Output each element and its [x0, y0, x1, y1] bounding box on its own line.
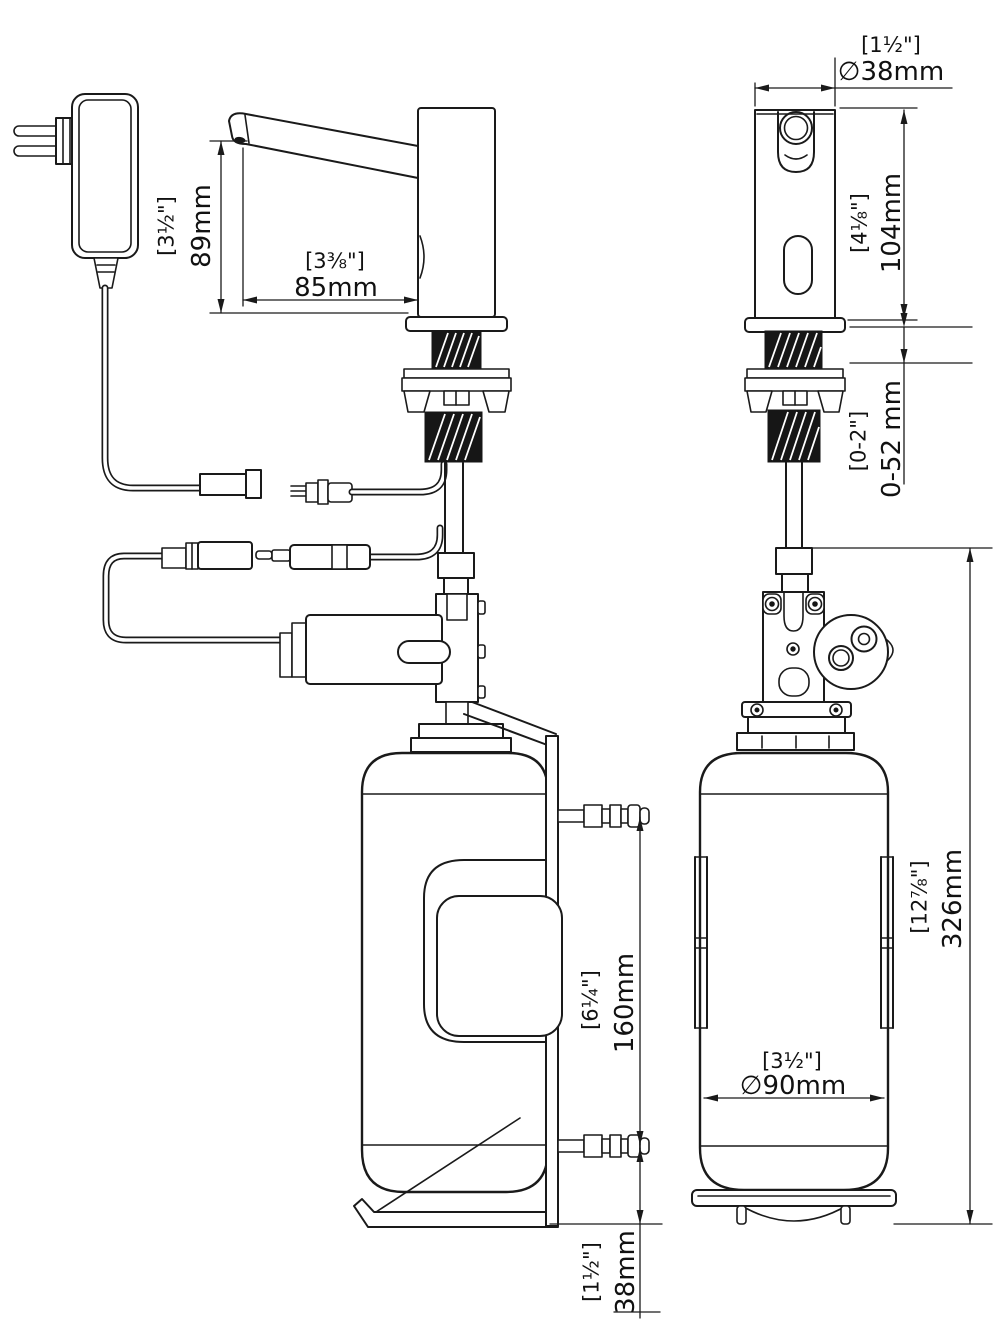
technical-drawing: [3½"] 89mm [3⅜"] 85mm [1½"] ∅38mm [4⅛"] …	[0, 0, 1000, 1337]
plug-rib	[318, 480, 328, 504]
spout-arm	[229, 113, 418, 178]
base-pin	[737, 1206, 746, 1224]
spout-side-view	[229, 108, 511, 752]
pump-end-cap	[292, 623, 306, 677]
plug-tip	[306, 483, 318, 502]
bracket-window	[437, 896, 562, 1036]
bottle-front-view	[692, 753, 896, 1224]
dim-bottle-diameter-inch: [3½"]	[762, 1049, 822, 1073]
pump-notch	[398, 641, 450, 663]
dim-deck-thickness-mm: 0-52 mm	[877, 380, 907, 498]
dimension-spout-body-height: [4⅛"] 104mm	[840, 108, 917, 320]
jack-male	[256, 545, 370, 569]
pump-end-cap	[280, 633, 292, 677]
drawing-sheet: [3½"] 89mm [3⅜"] 85mm [1½"] ∅38mm [4⅛"] …	[0, 0, 1000, 1337]
fitting-neck	[444, 578, 468, 594]
pump-motor	[280, 615, 450, 684]
jack-pin	[256, 551, 272, 559]
plug-prong	[14, 146, 62, 156]
dim-bracket-screw-spacing-mm: 160mm	[610, 953, 640, 1053]
dimension-bracket-screw-spacing: [6¼"] 160mm	[578, 817, 643, 1145]
power-adapter	[14, 94, 138, 288]
mounting-washer	[404, 369, 509, 378]
connector-body	[200, 474, 246, 495]
strain-relief	[94, 258, 118, 288]
dim-spout-reach-mm: 85mm	[294, 273, 378, 303]
dim-bottle-diameter-mm: ∅90mm	[740, 1071, 846, 1101]
dimension-bottle-diameter: [3½"] ∅90mm	[704, 1049, 884, 1102]
bottle-outline-front	[700, 753, 888, 1190]
dim-spout-height-mm: 89mm	[187, 184, 217, 268]
dim-spout-body-height-inch: [4⅛"]	[847, 193, 871, 253]
adapter-cable	[105, 288, 200, 488]
dim-bottle-height-mm: 326mm	[938, 849, 968, 949]
dim-spout-body-height-mm: 104mm	[877, 173, 907, 273]
bottle-base	[692, 1190, 896, 1224]
plug-barrel	[328, 483, 352, 502]
dim-spout-height-inch: [3½"]	[154, 196, 178, 256]
plug-prong	[14, 126, 62, 136]
dim-spout-diameter-inch: [1½"]	[861, 33, 921, 57]
spout-flange	[406, 317, 507, 331]
bracket-foot	[354, 1199, 558, 1227]
bottle-cap-front	[737, 702, 854, 750]
dim-bottle-height-inch: [12⅞"]	[907, 860, 931, 933]
pump-head-front	[814, 615, 893, 689]
bracket-gusset	[376, 1118, 520, 1212]
compression-fitting-front	[776, 548, 812, 574]
jack-band	[332, 545, 347, 569]
spout-body-front	[755, 110, 835, 318]
dimension-spout-diameter: [1½"] ∅38mm	[755, 33, 952, 106]
dim-spout-reach-inch: [3⅜"]	[305, 249, 365, 273]
dim-spout-diameter-mm: ∅38mm	[838, 57, 944, 87]
dimension-deck-thickness: [0-2"] 0-52 mm	[846, 313, 972, 498]
mounting-washer-front	[747, 369, 843, 378]
dim-bracket-bottom-offset-inch: [1½"]	[579, 1242, 603, 1302]
jack-female	[162, 542, 252, 569]
bottle-cap-side	[411, 724, 511, 752]
jack-shaft	[272, 550, 290, 561]
dim-deck-thickness-inch: [0-2"]	[846, 411, 870, 471]
dim-bracket-screw-spacing-inch: [6¼"]	[578, 970, 602, 1030]
bracket-screw-bottom	[558, 1135, 649, 1157]
spout-body-side	[418, 108, 495, 317]
base-pin	[841, 1206, 850, 1224]
compression-fitting	[438, 553, 474, 578]
mounting-nut	[402, 378, 511, 412]
connector-cap	[246, 470, 261, 498]
dimension-bracket-bottom-offset: [1½"] 38mm	[550, 1148, 662, 1318]
jack-sleeve	[162, 548, 186, 568]
fitting-neck-front	[782, 574, 808, 592]
jack-body	[290, 545, 370, 569]
inline-connector	[200, 470, 261, 498]
spout-flange-front	[745, 318, 845, 332]
dim-bracket-bottom-offset-mm: 38mm	[611, 1230, 641, 1314]
adapter-body	[72, 94, 138, 258]
sensor-plug	[291, 464, 444, 504]
jack-body	[198, 542, 252, 569]
mounting-bracket	[354, 702, 649, 1227]
mounting-nut-front	[745, 378, 845, 412]
bracket-screw-top	[558, 805, 649, 827]
